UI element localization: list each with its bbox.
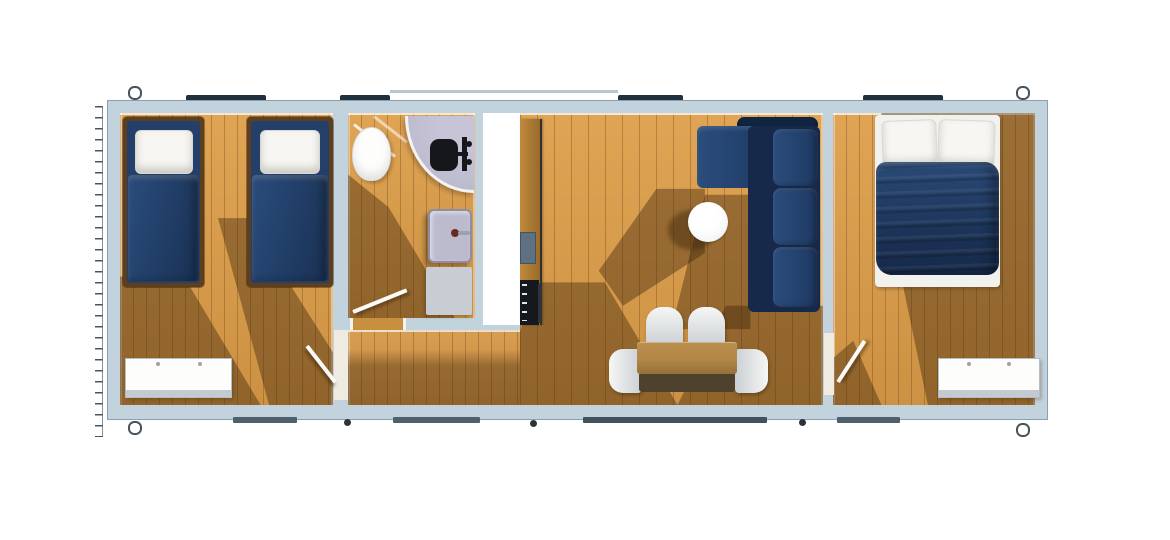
dining-chair — [688, 307, 725, 347]
bathroom-floor — [348, 113, 475, 318]
single-bed-2 — [247, 117, 333, 287]
bed-duvet — [252, 175, 328, 281]
wardrobe-bedroom-2 — [938, 358, 1040, 398]
left-ruler — [95, 106, 103, 437]
bedroom-2-floor — [833, 113, 1035, 405]
shower-head — [430, 139, 458, 171]
window-bottom-hallway — [393, 417, 480, 423]
sofa-seat-cushion — [773, 247, 818, 307]
bed-duvet — [128, 175, 199, 281]
wall-anchor-dot — [530, 420, 537, 427]
basin-faucet-handle — [458, 231, 470, 235]
dining-chair — [646, 307, 683, 347]
shower-knob — [466, 141, 472, 147]
bed-pillow — [260, 130, 320, 174]
corner-fitting-top-left — [128, 86, 142, 100]
hallway-floor — [348, 330, 520, 405]
corner-fitting-top-right — [1016, 86, 1030, 100]
roof-edge-line — [390, 90, 618, 93]
kitchen-sink — [520, 232, 536, 264]
appliance-handle — [538, 283, 542, 323]
bed-mattress — [127, 121, 200, 283]
double-bed — [875, 115, 1000, 287]
toilet — [352, 127, 391, 181]
floor-shadow — [348, 330, 520, 405]
dining-table — [637, 342, 737, 392]
bath-mat — [426, 267, 472, 315]
living-room-floor — [520, 113, 823, 405]
bed-pillow-left — [881, 119, 938, 168]
bed-mattress — [251, 121, 329, 283]
single-bed-1 — [123, 117, 204, 287]
round-side-table — [688, 202, 728, 242]
bed-duvet — [876, 162, 999, 275]
sofa-seat-cushion — [773, 129, 818, 186]
wall-anchor-dot — [344, 419, 351, 426]
wall-anchor-dot — [799, 419, 806, 426]
void-space — [483, 113, 520, 325]
dining-table-top — [637, 342, 737, 374]
window-bottom-bedroom-2 — [837, 417, 900, 423]
door-opening-bathroom — [350, 318, 406, 330]
shower-knob — [466, 159, 472, 165]
cooktop — [520, 280, 539, 325]
bed-pillow — [135, 130, 193, 174]
window-bottom-bedroom-1 — [233, 417, 297, 423]
dining-table-front — [639, 374, 735, 392]
door-opening-bedroom-1 — [334, 330, 348, 400]
corner-fitting-bottom-right — [1016, 423, 1030, 437]
window-bottom-living — [583, 417, 767, 423]
wardrobe-bedroom-1 — [125, 358, 232, 398]
door-opening-bedroom-2 — [824, 333, 834, 395]
dining-chair — [735, 349, 768, 393]
cooktop-burner-dots — [522, 284, 527, 321]
sofa-seat-cushion — [773, 188, 818, 245]
bed-pillow-right — [937, 119, 996, 168]
floor-plan-canvas — [0, 0, 1170, 540]
bedroom-1-floor — [120, 113, 333, 405]
corner-fitting-bottom-left — [128, 421, 142, 435]
wash-basin — [428, 209, 472, 263]
